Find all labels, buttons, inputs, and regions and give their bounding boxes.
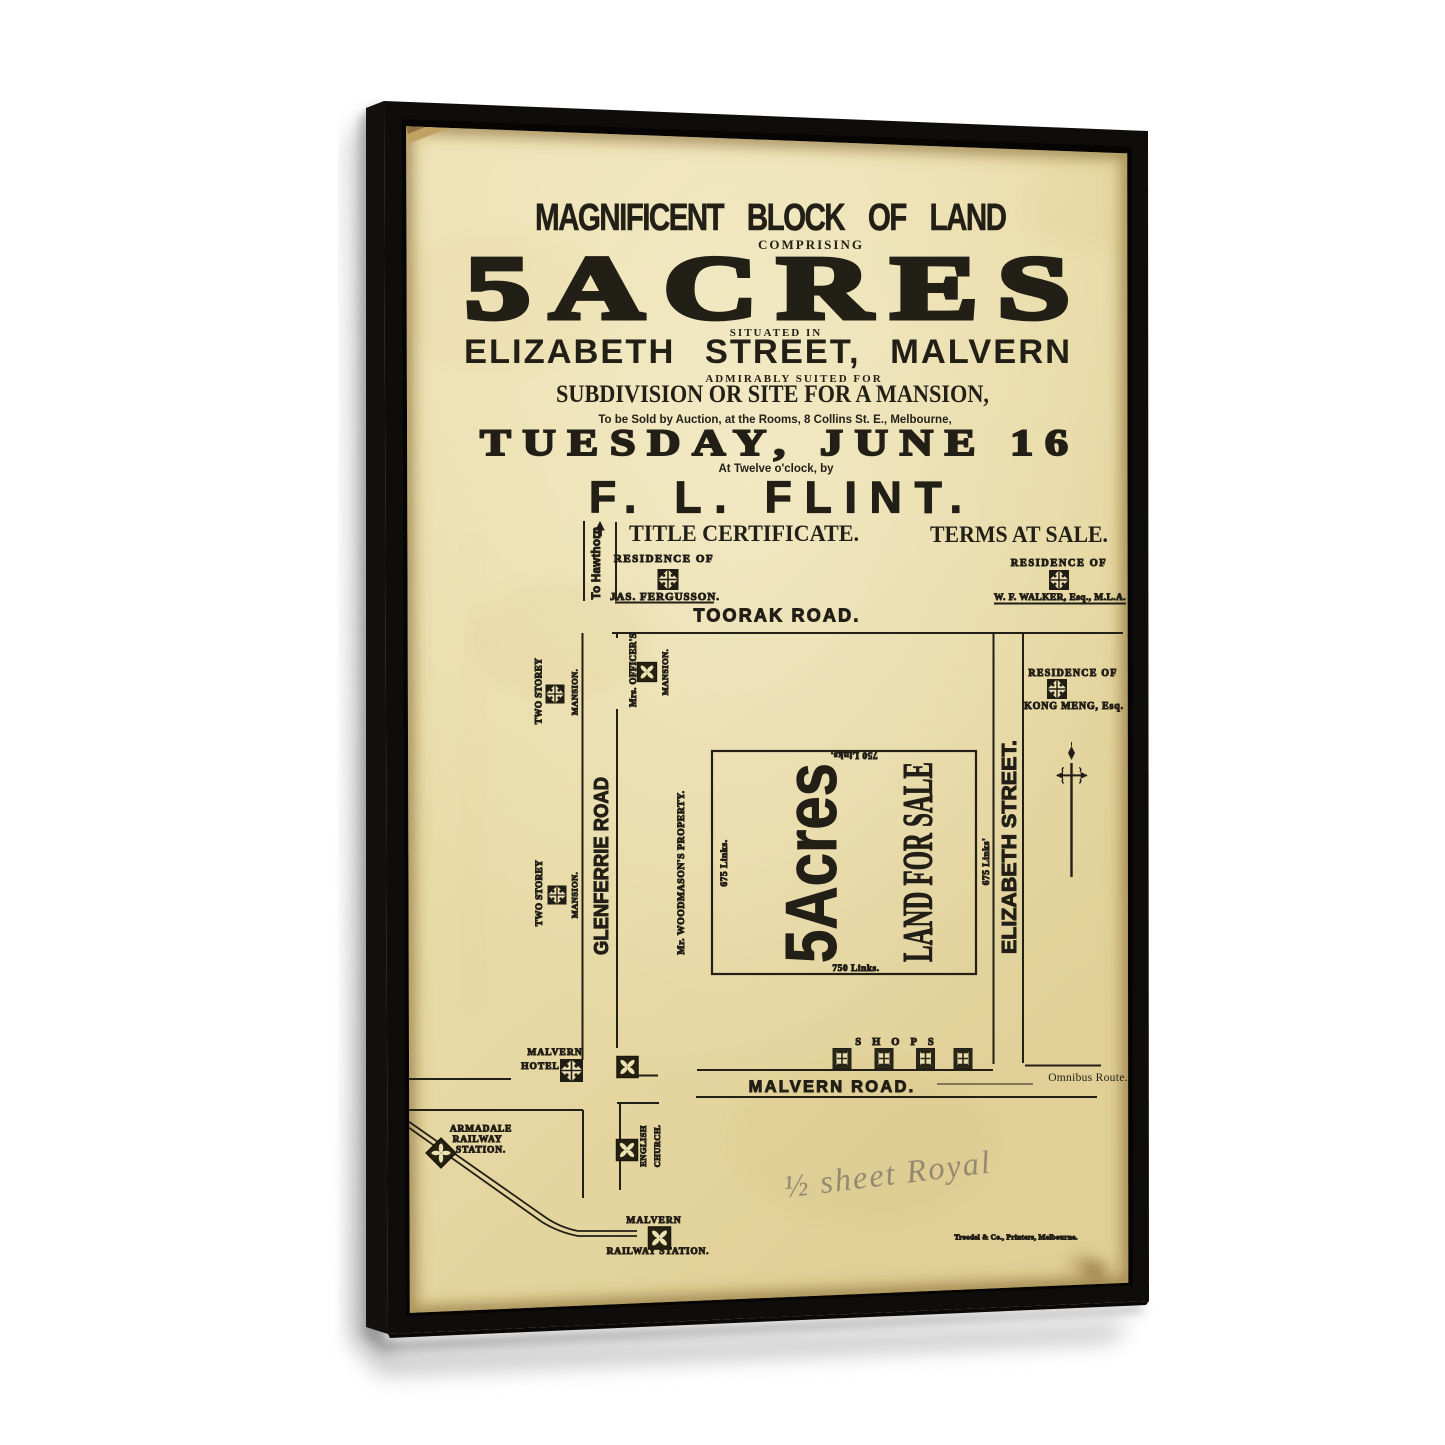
svg-text:KONG MENG, Esq.: KONG MENG, Esq. bbox=[1024, 701, 1124, 712]
svg-text:TITLE CERTIFICATE.: TITLE CERTIFICATE. bbox=[629, 521, 859, 547]
svg-text:MALVERN: MALVERN bbox=[626, 1216, 681, 1226]
svg-text:SUBDIVISION OR SITE FOR A MANS: SUBDIVISION OR SITE FOR A MANSION, bbox=[556, 381, 989, 408]
svg-text:MANSION.: MANSION. bbox=[570, 669, 580, 715]
svg-text:MAGNIFICENT BLOCK OF LAND: MAGNIFICENT BLOCK OF LAND bbox=[535, 197, 1007, 239]
svg-text:Troedel & Co., Printers, Melbo: Troedel & Co., Printers, Melbourne. bbox=[954, 1233, 1077, 1242]
svg-text:W. F. WALKER, Esq., M.L.A.: W. F. WALKER, Esq., M.L.A. bbox=[994, 593, 1126, 603]
svg-text:ARMADALE: ARMADALE bbox=[450, 1125, 512, 1135]
svg-text:5Acres: 5Acres bbox=[772, 763, 852, 963]
svg-text:ELIZABETH STREET, MALVERN: ELIZABETH STREET, MALVERN bbox=[464, 333, 1070, 371]
svg-text:JAS. FERGUSSON.: JAS. FERGUSSON. bbox=[610, 591, 720, 603]
svg-text:Mr. WOODMASON'S PROPERTY.: Mr. WOODMASON'S PROPERTY. bbox=[676, 790, 687, 954]
svg-text:ELIZABETH STREET.: ELIZABETH STREET. bbox=[998, 740, 1021, 954]
svg-text:Omnibus Route.: Omnibus Route. bbox=[1048, 1072, 1128, 1084]
svg-text:TWO STOREY: TWO STOREY bbox=[534, 658, 544, 724]
svg-text:To Hawthorn: To Hawthorn bbox=[591, 527, 603, 600]
svg-text:HOTEL: HOTEL bbox=[521, 1062, 560, 1072]
svg-text:ENGLISH: ENGLISH bbox=[638, 1125, 648, 1167]
svg-text:RESIDENCE OF: RESIDENCE OF bbox=[614, 553, 714, 565]
svg-text:675 Links': 675 Links' bbox=[982, 838, 992, 886]
svg-text:MALVERN ROAD.: MALVERN ROAD. bbox=[749, 1078, 916, 1096]
svg-text:MALVERN: MALVERN bbox=[527, 1048, 582, 1058]
svg-text:MANSION.: MANSION. bbox=[570, 872, 580, 918]
svg-text:LAND FOR SALE: LAND FOR SALE bbox=[896, 762, 942, 962]
svg-text:RAILWAY: RAILWAY bbox=[453, 1135, 503, 1145]
svg-text:TOORAK ROAD.: TOORAK ROAD. bbox=[693, 606, 860, 626]
svg-text:675 Links.: 675 Links. bbox=[720, 839, 730, 886]
svg-text:GLENFERRIE ROAD: GLENFERRIE ROAD bbox=[591, 777, 613, 955]
svg-text:SHOPS: SHOPS bbox=[855, 1037, 944, 1048]
svg-text:MANSION.: MANSION. bbox=[660, 649, 670, 695]
svg-text:RAILWAY STATION.: RAILWAY STATION. bbox=[607, 1247, 710, 1257]
svg-text:750 Links.: 750 Links. bbox=[832, 964, 879, 974]
svg-text:Mrs. OFFICER'S: Mrs. OFFICER'S bbox=[628, 633, 638, 707]
svg-text:CHURCH.: CHURCH. bbox=[652, 1125, 662, 1168]
svg-text:RESIDENCE OF: RESIDENCE OF bbox=[1028, 668, 1117, 679]
svg-text:TWO STOREY: TWO STOREY bbox=[534, 860, 544, 926]
svg-text:750 Links.: 750 Links. bbox=[830, 750, 877, 760]
svg-text:RESIDENCE OF: RESIDENCE OF bbox=[1011, 558, 1107, 569]
svg-text:STATION.: STATION. bbox=[456, 1146, 506, 1156]
svg-text:TERMS AT SALE.: TERMS AT SALE. bbox=[930, 522, 1108, 548]
